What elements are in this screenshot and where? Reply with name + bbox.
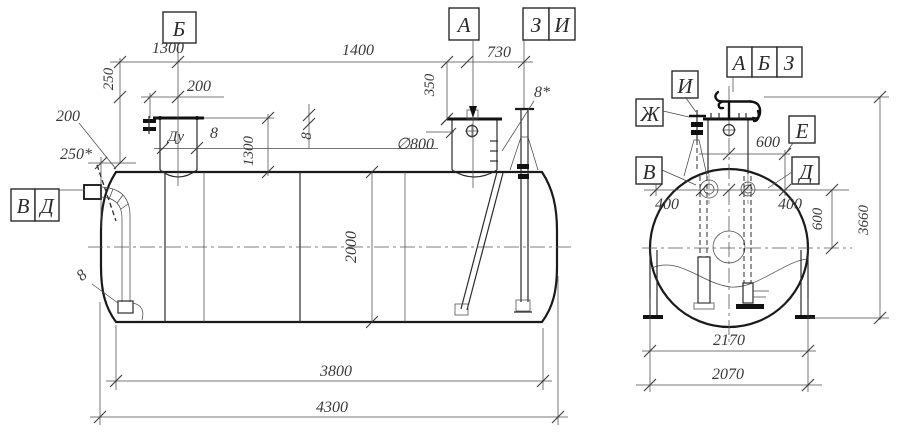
dim-730: 730	[487, 44, 511, 61]
dim-8-star: 8*	[534, 84, 550, 101]
dim-250-star: 250*	[60, 146, 92, 163]
section-label-a2: А	[731, 51, 746, 75]
dim-4300: 4300	[316, 399, 348, 416]
dim-3660: 3660	[856, 205, 872, 237]
section-label-d: Д	[38, 194, 55, 218]
end-internal-pipe-right	[736, 176, 769, 309]
dim-8-nozzle: 8	[210, 125, 218, 142]
dim-400-right: 400	[778, 196, 802, 213]
dim-2070: 2070	[712, 366, 744, 383]
dim-8-shell: 8	[299, 132, 315, 140]
section-label-v: В	[17, 194, 30, 218]
nozzle-dimensions: Ду 8 1300 8 ∅800 8*	[154, 84, 550, 178]
end-nozzle-d	[741, 174, 755, 204]
arrow-down-icon	[469, 106, 477, 118]
tank-drawing: 2000 1300 1400 730 250 200 35	[0, 0, 900, 436]
end-view: 400 400 600 600 3660 2170	[636, 47, 889, 392]
section-label-b: Б	[172, 17, 185, 41]
dim-400-left: 400	[655, 196, 679, 213]
dim-1300-nozzle: 1300	[241, 136, 257, 167]
section-label-z2: З	[784, 51, 794, 75]
left-dimensions: 200 250* 8	[56, 108, 136, 303]
dim-3800: 3800	[319, 363, 352, 380]
dim-2170: 2170	[713, 332, 745, 349]
side-view: 2000 1300 1400 730 250 200 35	[11, 8, 575, 425]
end-internal-pipe-left	[694, 176, 714, 309]
section-label-i: И	[553, 13, 571, 37]
section-label-z: З	[531, 13, 541, 37]
nozzle-b	[153, 43, 204, 186]
bottom-dimensions: 3800 4300	[90, 276, 568, 425]
section-label-b2: Б	[757, 51, 770, 75]
section-label-a: А	[456, 13, 471, 37]
dim-8-cone: 8	[73, 267, 90, 285]
section-label-e: Е	[795, 119, 809, 143]
drawing-canvas: 2000 1300 1400 730 250 200 35	[0, 0, 900, 436]
fill-pipe	[84, 165, 143, 320]
manhole-a	[447, 41, 502, 188]
end-manhole	[703, 113, 754, 174]
dim-600-h: 600	[756, 134, 780, 151]
label-du: Ду	[166, 129, 185, 145]
dim-250: 250	[101, 67, 117, 90]
vent-mast	[510, 40, 538, 312]
dim-600-v: 600	[810, 207, 826, 230]
ladder	[455, 172, 503, 315]
dim-dia-800: ∅800	[396, 136, 434, 153]
section-label-d2: Д	[797, 160, 814, 184]
section-label-zh: Ж	[639, 102, 660, 126]
vent-gooseneck	[715, 92, 760, 121]
dim-2000: 2000	[343, 231, 360, 263]
dim-200: 200	[187, 78, 211, 95]
dim-1400: 1400	[342, 42, 374, 59]
section-label-v2: В	[643, 160, 656, 184]
dim-200-leader: 200	[56, 108, 80, 125]
dim-350: 350	[422, 73, 438, 97]
end-dimensions: 400 400 600 600 3660 2170	[636, 91, 889, 392]
section-label-i2: И	[676, 74, 694, 98]
